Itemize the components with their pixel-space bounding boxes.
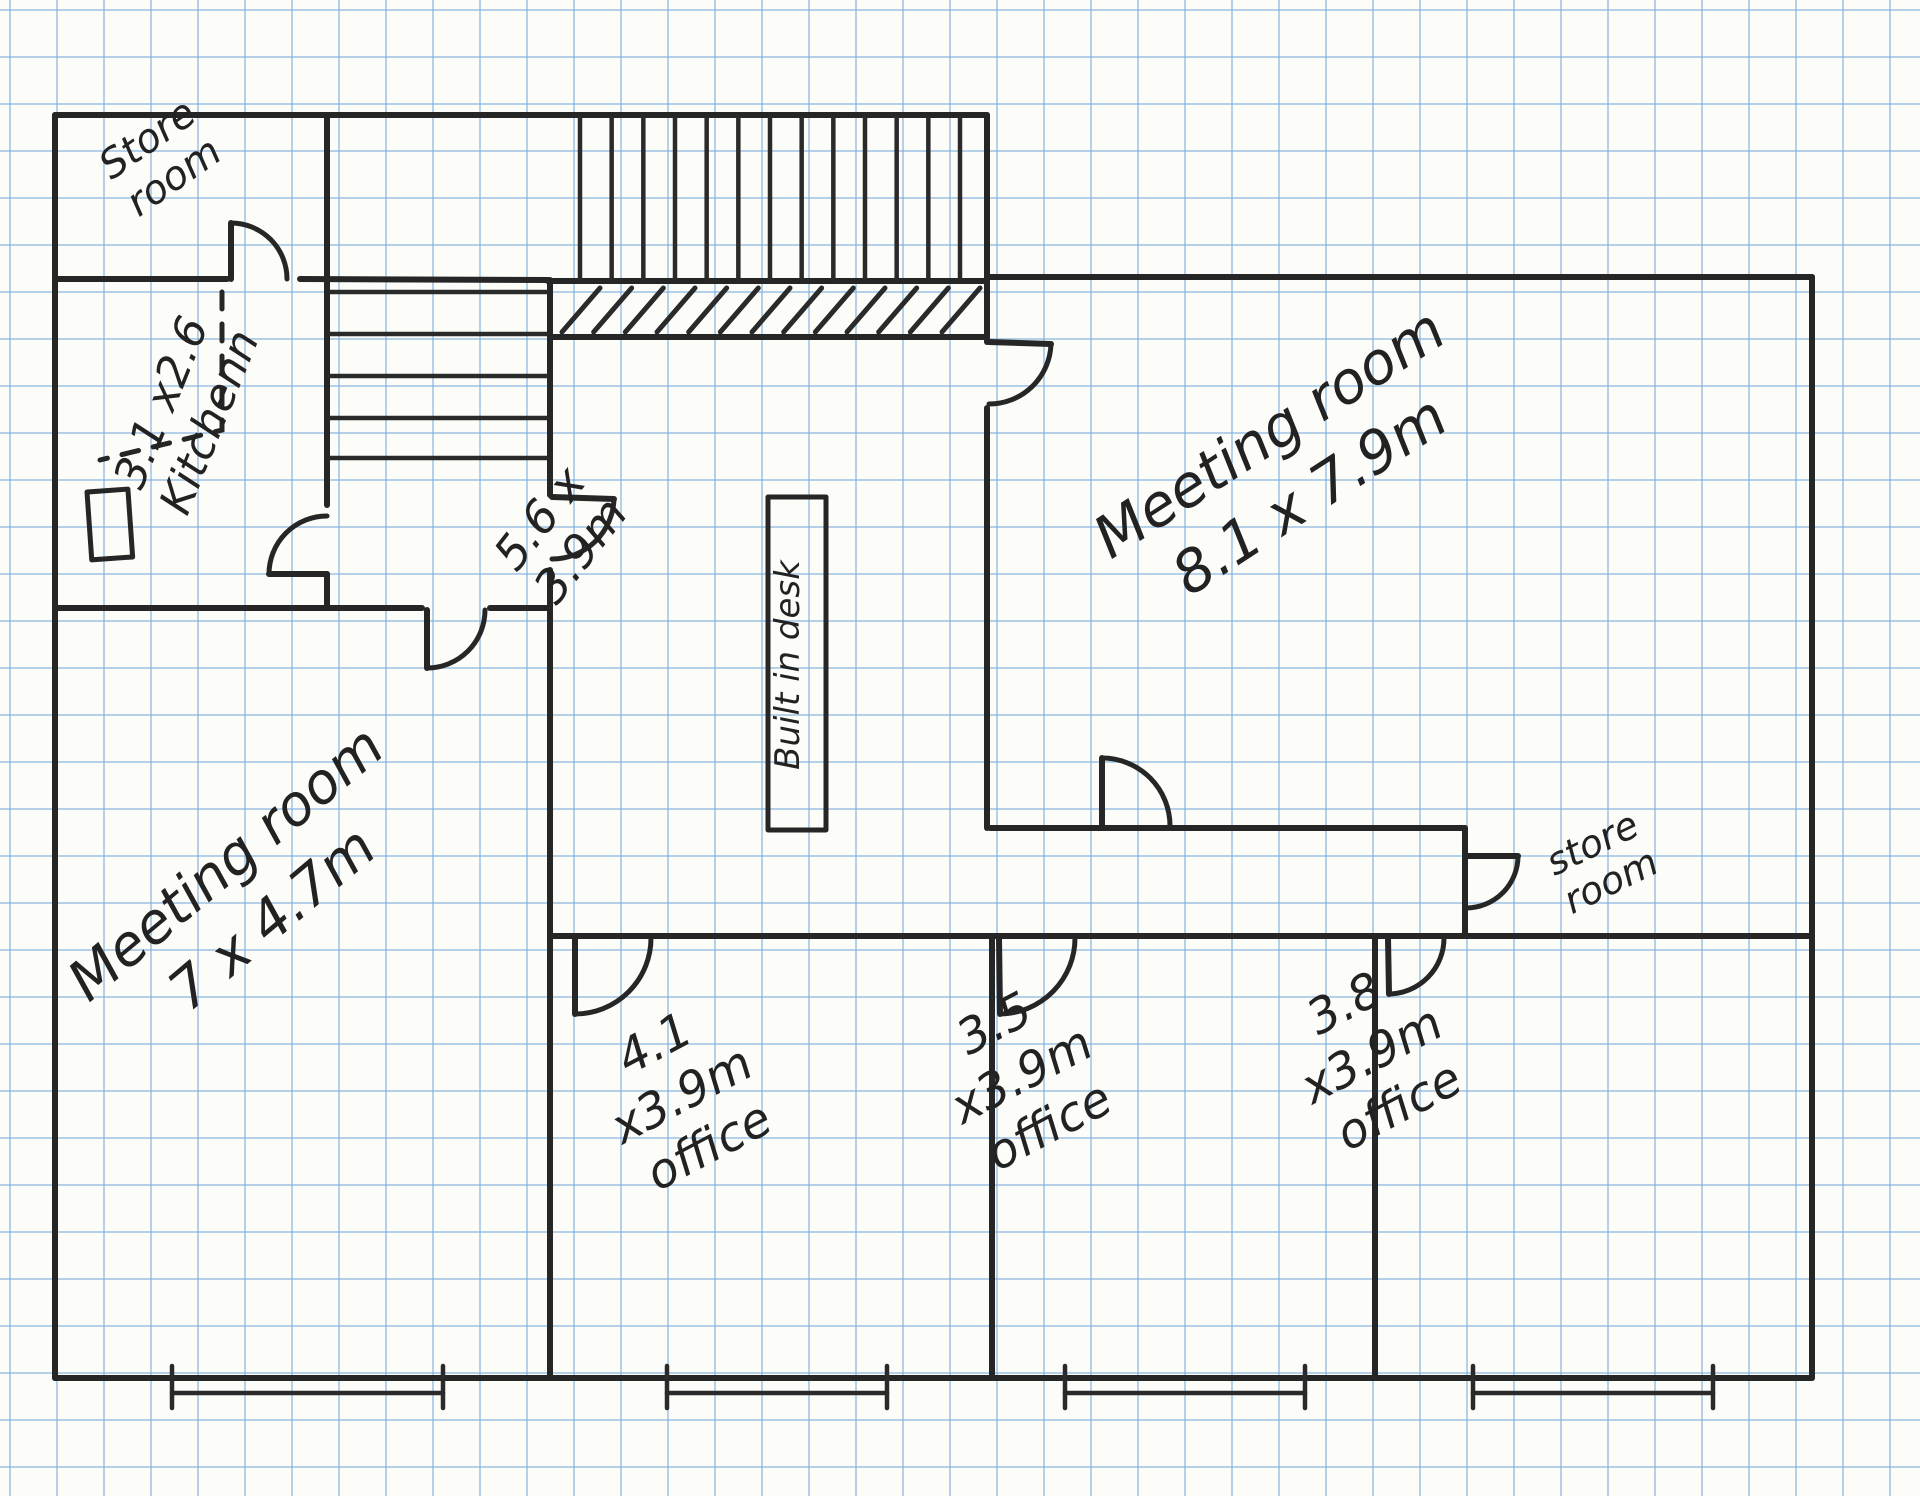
store-room-top-left-label: Storeroom (91, 90, 231, 227)
office-3-5-label: 3.5x3.9moffice (913, 964, 1129, 1188)
hatch-line (657, 288, 695, 332)
wall (300, 279, 548, 280)
office-3-8-label: 3.8x3.9moffice (1263, 944, 1479, 1168)
hatch-line (689, 288, 727, 332)
hatch-line (720, 288, 758, 332)
hatch-line (942, 288, 980, 332)
hatch-line (625, 288, 663, 332)
store-room-top-left-door-swing (231, 223, 287, 279)
office-4-1-door-swing (575, 938, 651, 1014)
meeting-room-8-upper-door-leaf (989, 342, 1051, 344)
office-3-8-door-leaf (1388, 938, 1389, 994)
hatch-line (879, 288, 917, 332)
hatch-line (594, 288, 632, 332)
store-room-right-label: storeroom (1538, 802, 1665, 923)
kitchen-fixture (87, 489, 133, 560)
meeting-room-7-door-swing (427, 610, 485, 668)
floor-plan-drawing: Storeroom3.1 x2.6Kitchenn5.6 x3.9mBuilt … (0, 0, 1920, 1496)
hatch-line (910, 288, 948, 332)
meeting-room-8-label: Meeting room8.1 x 7.9m (1081, 295, 1497, 634)
hatch-line (847, 288, 885, 332)
office-3-8-door-swing (1389, 938, 1444, 994)
meeting-room-8-lower-door-swing (1102, 758, 1170, 826)
graph-paper: Storeroom3.1 x2.6Kitchenn5.6 x3.9mBuilt … (0, 0, 1920, 1496)
hatch-line (562, 288, 600, 332)
meeting-room-7-label: Meeting room7 x 4.7m (56, 714, 443, 1069)
built-in-desk-label: Built in desk (768, 559, 808, 770)
hatch-line (752, 288, 790, 332)
room-5-6-label: 5.6 x3.9m (482, 455, 638, 613)
hatch-line (784, 288, 822, 332)
store-room-right-door-swing (1466, 856, 1518, 908)
meeting-room-8-upper-door-swing (989, 344, 1051, 404)
office-4-1-label: 4.1x3.9moffice (573, 984, 789, 1208)
kitchen-door-swing (269, 516, 327, 574)
hatch-line (815, 288, 853, 332)
